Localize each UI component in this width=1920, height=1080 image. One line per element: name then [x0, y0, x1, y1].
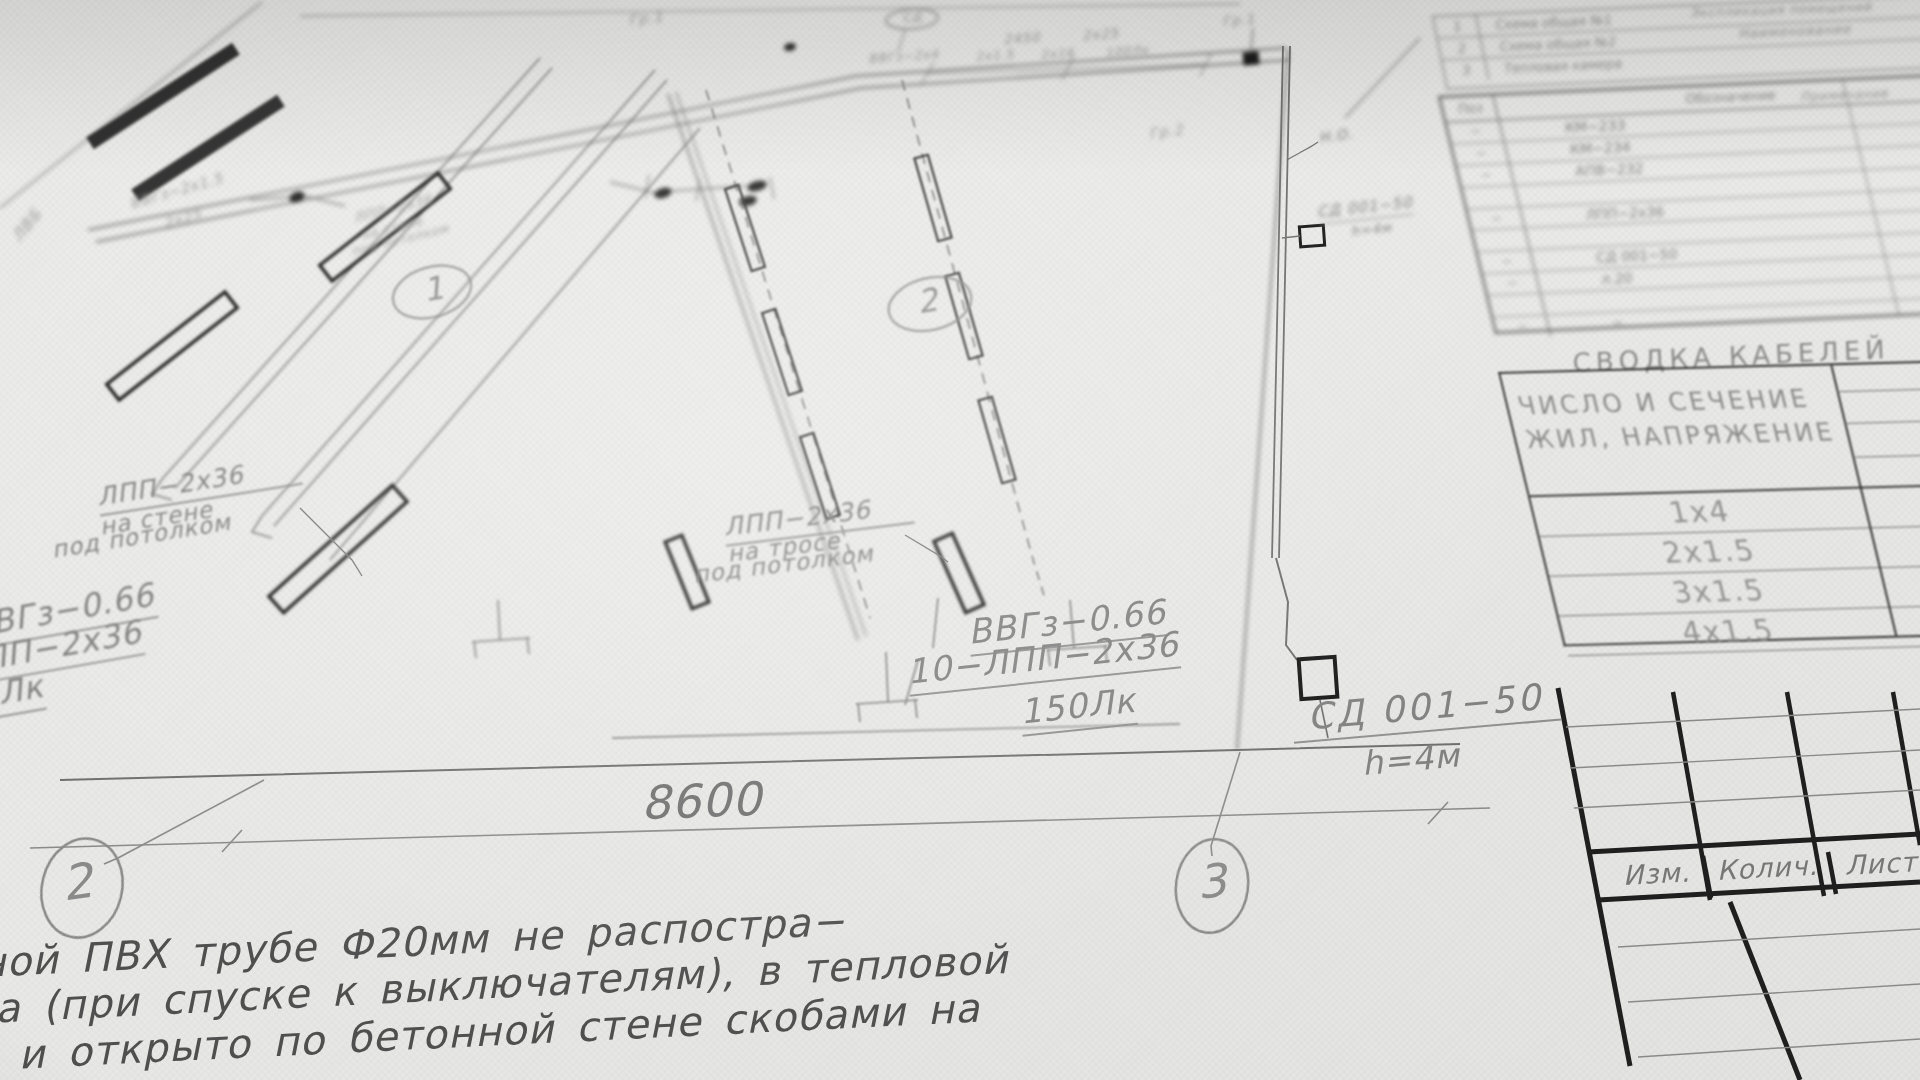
photographed-drawing: Экспликация помещений 1 Схема общая №1 2…: [0, 0, 1920, 1080]
switch-main-name: СД 001−50: [1290, 675, 1561, 744]
main-dimension-value: 8600: [640, 772, 763, 830]
title-block-kolich: Колич.: [1716, 850, 1819, 886]
axis-left-number: 2: [58, 852, 97, 912]
axis-right-number: 3: [1194, 853, 1230, 910]
group-lux-label: 150Лк: [1018, 680, 1138, 737]
title-block-izm: Изм.: [1622, 856, 1691, 890]
title-block-list: Лист: [1844, 846, 1918, 881]
near-depth-tier: ВВГз−0.66 10−ЛПП−2х36 150Лк СД 001−50 h=…: [0, 0, 1920, 1080]
switch-main-height: h=4м: [1360, 735, 1461, 782]
